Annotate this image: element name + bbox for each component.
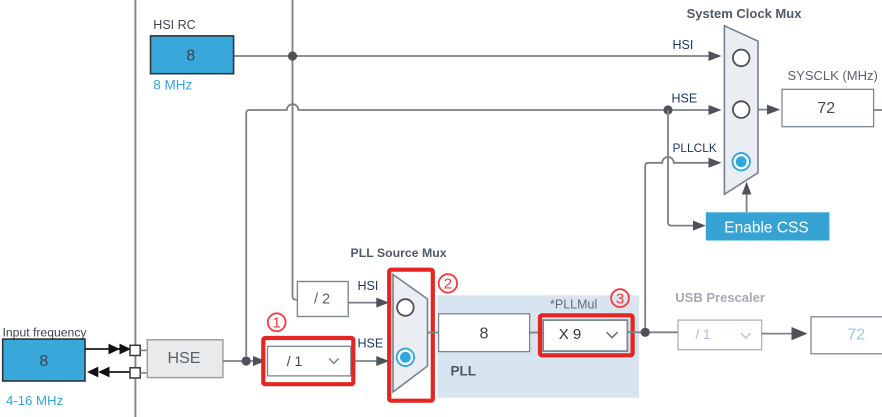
svg-text:HSE: HSE <box>672 91 698 105</box>
svg-text:*PLLMul: *PLLMul <box>550 298 597 312</box>
svg-text:HSI: HSI <box>673 38 694 52</box>
svg-text:PLLCLK: PLLCLK <box>673 141 717 155</box>
svg-text:2: 2 <box>444 276 452 293</box>
svg-text:/ 2: / 2 <box>314 291 330 307</box>
svg-text:X 9: X 9 <box>559 326 582 343</box>
svg-text:HSI: HSI <box>358 279 379 293</box>
svg-text:8: 8 <box>39 353 48 370</box>
svg-text:8: 8 <box>480 325 489 342</box>
svg-text:HSE: HSE <box>358 336 384 350</box>
svg-text:Input frequency: Input frequency <box>3 326 88 340</box>
svg-text:72: 72 <box>847 326 865 343</box>
svg-text:/ 1: / 1 <box>695 327 710 342</box>
svg-text:Enable CSS: Enable CSS <box>724 219 808 236</box>
svg-text:1: 1 <box>272 315 280 332</box>
svg-text:/ 1: / 1 <box>287 353 303 369</box>
svg-text:HSE: HSE <box>168 350 201 367</box>
svg-text:PLL: PLL <box>451 364 477 379</box>
svg-text:72: 72 <box>817 100 835 117</box>
svg-text:8 MHz: 8 MHz <box>153 78 192 93</box>
svg-text:HSI RC: HSI RC <box>153 18 195 32</box>
svg-text:System Clock Mux: System Clock Mux <box>687 6 803 21</box>
svg-text:4-16 MHz: 4-16 MHz <box>6 393 63 408</box>
svg-text:3: 3 <box>616 290 624 307</box>
svg-text:PLL Source Mux: PLL Source Mux <box>351 246 447 260</box>
svg-text:SYSCLK (MHz): SYSCLK (MHz) <box>788 68 878 83</box>
svg-text:8: 8 <box>186 47 195 64</box>
svg-text:USB Prescaler: USB Prescaler <box>675 290 765 305</box>
